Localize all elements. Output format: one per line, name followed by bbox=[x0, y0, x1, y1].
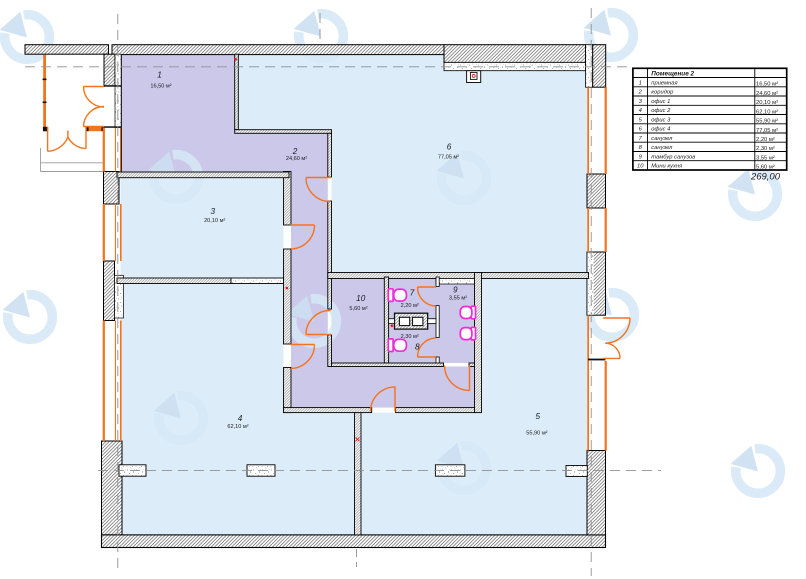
svg-text:10: 10 bbox=[356, 294, 366, 303]
svg-text:1: 1 bbox=[639, 80, 642, 86]
svg-text:20,10 м²: 20,10 м² bbox=[756, 100, 778, 106]
svg-text:офис 4: офис 4 bbox=[651, 127, 670, 133]
svg-text:офис 1: офис 1 bbox=[651, 99, 670, 105]
svg-text:62,10 м²: 62,10 м² bbox=[227, 424, 248, 430]
svg-text:8: 8 bbox=[415, 343, 420, 352]
svg-text:24,60 м²: 24,60 м² bbox=[756, 91, 778, 97]
svg-text:16,50 м²: 16,50 м² bbox=[150, 84, 171, 90]
svg-text:4: 4 bbox=[639, 108, 642, 114]
svg-text:7: 7 bbox=[410, 289, 415, 298]
svg-text:5,60 м²: 5,60 м² bbox=[756, 165, 775, 171]
svg-text:Мини кухня: Мини кухня bbox=[651, 164, 682, 170]
svg-text:офис 3: офис 3 bbox=[651, 117, 671, 123]
svg-text:4: 4 bbox=[238, 414, 243, 423]
svg-text:санузел: санузел bbox=[651, 145, 673, 151]
svg-text:3: 3 bbox=[211, 207, 216, 216]
svg-text:3,55 м²: 3,55 м² bbox=[449, 295, 467, 301]
svg-text:2,30 м²: 2,30 м² bbox=[756, 146, 775, 152]
svg-text:10: 10 bbox=[637, 164, 644, 170]
svg-text:5: 5 bbox=[536, 412, 541, 421]
svg-text:62,10 м²: 62,10 м² bbox=[756, 109, 778, 115]
svg-text:3,55 м²: 3,55 м² bbox=[756, 156, 775, 162]
svg-text:55,90 м²: 55,90 м² bbox=[756, 119, 778, 125]
svg-text:5,60 м²: 5,60 м² bbox=[349, 306, 367, 312]
svg-text:55,90 м²: 55,90 м² bbox=[526, 431, 547, 437]
svg-text:тамбур санузов: тамбур санузов bbox=[651, 154, 695, 160]
svg-text:2,20 м²: 2,20 м² bbox=[401, 303, 419, 309]
svg-text:санузел: санузел bbox=[651, 136, 673, 142]
svg-text:2,30 м²: 2,30 м² bbox=[401, 334, 419, 340]
svg-text:2: 2 bbox=[292, 147, 298, 156]
svg-text:16,50 м²: 16,50 м² bbox=[756, 82, 778, 88]
svg-text:Помещение 2: Помещение 2 bbox=[651, 71, 694, 78]
svg-text:77,05 м²: 77,05 м² bbox=[756, 128, 778, 134]
svg-text:6: 6 bbox=[447, 143, 452, 152]
svg-text:2,20 м²: 2,20 м² bbox=[756, 137, 775, 143]
svg-text:269,00: 269,00 bbox=[750, 172, 781, 183]
svg-text:9: 9 bbox=[453, 285, 458, 294]
svg-text:офис 2: офис 2 bbox=[651, 108, 671, 114]
svg-text:приемная: приемная bbox=[651, 80, 677, 86]
svg-text:77,05 м²: 77,05 м² bbox=[438, 155, 459, 161]
svg-text:20,10 м²: 20,10 м² bbox=[204, 218, 225, 224]
svg-text:1: 1 bbox=[157, 71, 162, 80]
svg-text:коридор: коридор bbox=[651, 90, 674, 96]
svg-text:24,60 м²: 24,60 м² bbox=[286, 156, 307, 162]
